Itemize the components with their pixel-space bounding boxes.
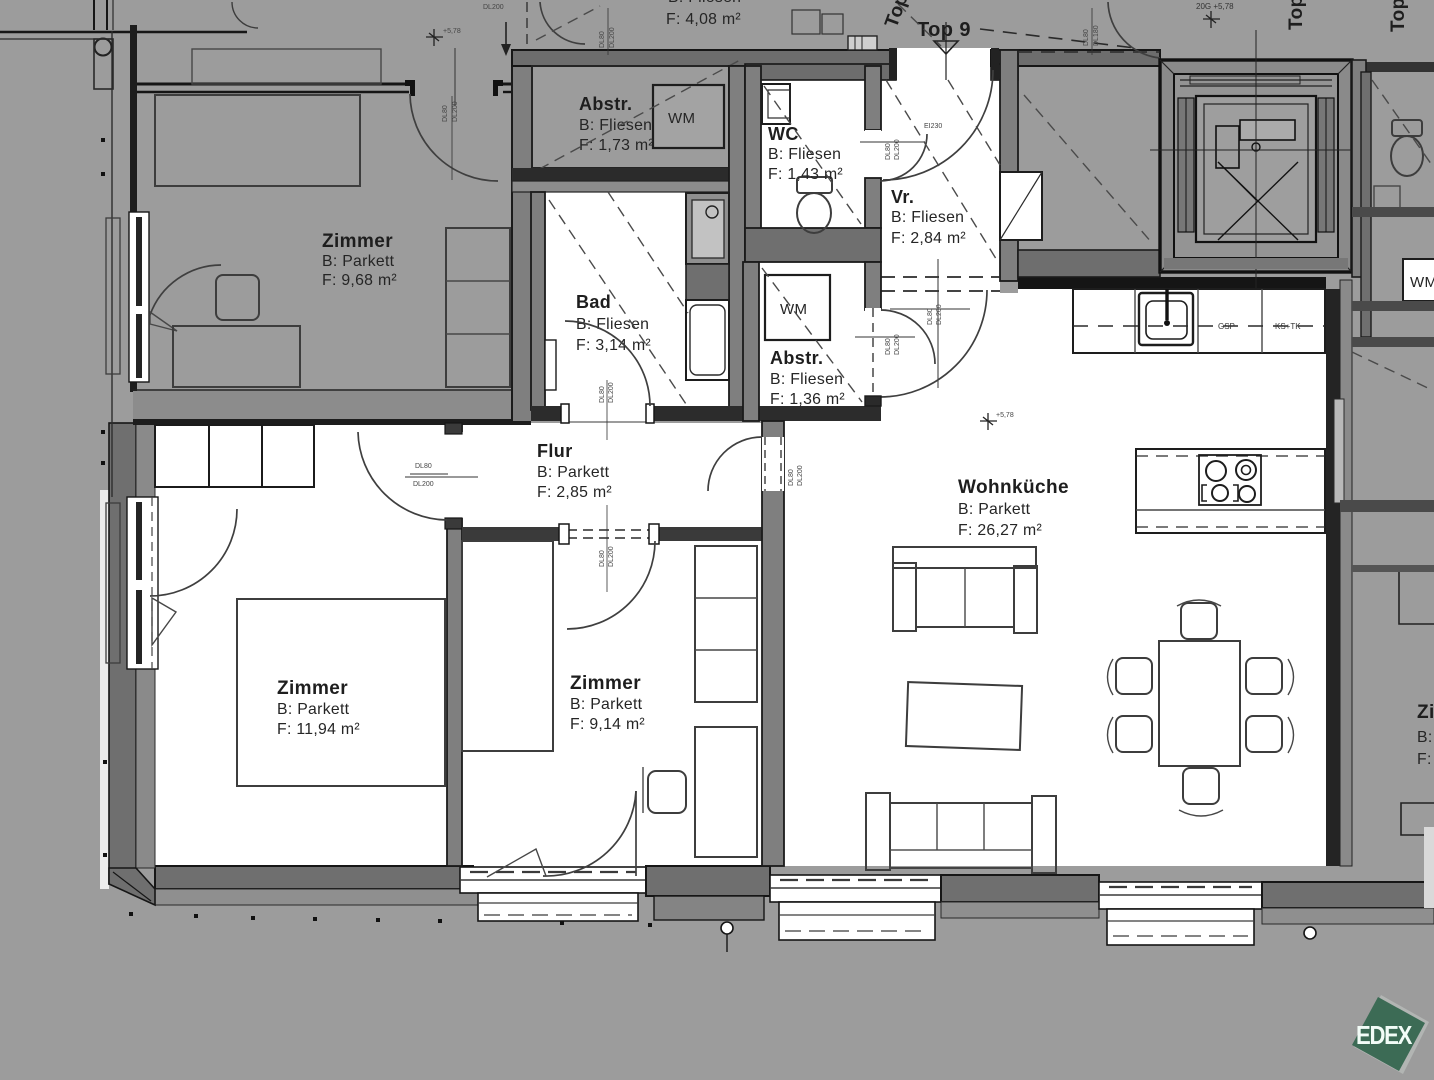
svg-text:F: 4,08 m²: F: 4,08 m²	[666, 11, 741, 28]
svg-text:DL200: DL200	[894, 334, 901, 355]
svg-text:DL80: DL80	[415, 463, 432, 470]
svg-text:F: 9,14 m²: F: 9,14 m²	[570, 716, 645, 733]
svg-text:Wohnküche: Wohnküche	[958, 477, 1069, 498]
svg-text:B: Parkett: B: Parkett	[277, 701, 350, 718]
svg-text:B: Fliesen: B: Fliesen	[770, 371, 843, 388]
svg-text:DL80: DL80	[885, 338, 892, 355]
svg-text:Abstr.: Abstr.	[579, 94, 632, 114]
svg-text:F: 2,85 m²: F: 2,85 m²	[537, 484, 612, 501]
svg-text:DL200: DL200	[608, 382, 615, 403]
svg-text:+5,78: +5,78	[996, 412, 1014, 419]
svg-text:B: Parkett: B: Parkett	[958, 501, 1031, 518]
svg-text:F: 3,14 m²: F: 3,14 m²	[576, 337, 651, 354]
svg-text:DL80: DL80	[599, 31, 606, 48]
svg-text:Flur: Flur	[537, 441, 573, 461]
svg-text:DL200: DL200	[609, 27, 616, 48]
svg-text:F: 9,68 m²: F: 9,68 m²	[322, 272, 397, 289]
svg-text:DL180: DL180	[1093, 25, 1100, 46]
svg-text:DL200: DL200	[797, 465, 804, 486]
svg-text:Zimmer: Zimmer	[277, 678, 348, 699]
svg-text:B: Fliesen: B: Fliesen	[891, 209, 964, 226]
svg-text:DL80: DL80	[442, 105, 449, 122]
svg-text:+5,78: +5,78	[443, 28, 461, 35]
svg-text:WC: WC	[768, 124, 799, 144]
svg-text:DL80: DL80	[885, 143, 892, 160]
svg-text:WM: WM	[1410, 274, 1434, 291]
svg-text:Abstr.: Abstr.	[770, 348, 823, 368]
svg-text:WM: WM	[780, 301, 807, 318]
svg-text:DL200: DL200	[452, 101, 459, 122]
svg-text:KS+TK: KS+TK	[1275, 322, 1301, 331]
svg-text:F: 26,27 m²: F: 26,27 m²	[958, 522, 1042, 539]
svg-text:20G +5,78: 20G +5,78	[1196, 2, 1234, 11]
svg-text:DL80: DL80	[788, 469, 795, 486]
svg-text:B: Parkett: B: Parkett	[1417, 729, 1434, 746]
svg-text:DL200: DL200	[413, 481, 434, 488]
svg-text:Vr.: Vr.	[891, 187, 914, 207]
svg-text:F: 1,43 m²: F: 1,43 m²	[768, 166, 843, 183]
svg-text:DL80: DL80	[927, 308, 934, 325]
svg-text:WM: WM	[668, 110, 695, 127]
svg-text:DL200: DL200	[483, 4, 504, 11]
svg-text:DL80: DL80	[599, 386, 606, 403]
svg-text:B: Parkett: B: Parkett	[537, 464, 610, 481]
svg-text:DL200: DL200	[936, 304, 943, 325]
svg-text:DL80: DL80	[599, 550, 606, 567]
svg-text:B: Fliesen: B: Fliesen	[668, 0, 741, 6]
svg-text:B: Parkett: B: Parkett	[322, 253, 395, 270]
svg-text:Zimmer: Zimmer	[322, 231, 393, 252]
svg-text:F: 1,36 m²: F: 1,36 m²	[770, 391, 845, 408]
svg-text:DL200: DL200	[608, 546, 615, 567]
svg-text:Top 9: Top 9	[1388, 0, 1409, 32]
svg-text:Top 8: Top 8	[1286, 0, 1307, 30]
svg-text:B: Parkett: B: Parkett	[570, 696, 643, 713]
svg-text:Zimmer: Zimmer	[1417, 702, 1434, 723]
svg-text:F: 2,84 m²: F: 2,84 m²	[891, 230, 966, 247]
svg-text:DL80: DL80	[1083, 29, 1090, 46]
svg-text:Bad: Bad	[576, 292, 611, 312]
svg-text:DL200: DL200	[894, 139, 901, 160]
svg-text:F: 9,43 m²: F: 9,43 m²	[1417, 751, 1434, 768]
svg-text:F: 11,94 m²: F: 11,94 m²	[277, 721, 360, 738]
svg-text:EI230: EI230	[924, 123, 942, 130]
svg-text:B: Fliesen: B: Fliesen	[579, 117, 652, 134]
svg-text:GSP: GSP	[1218, 322, 1235, 331]
svg-text:F: 1,73 m²: F: 1,73 m²	[579, 137, 654, 154]
svg-text:Zimmer: Zimmer	[570, 673, 641, 694]
svg-text:B: Fliesen: B: Fliesen	[768, 146, 841, 163]
svg-text:EDEX: EDEX	[1356, 1021, 1412, 1050]
